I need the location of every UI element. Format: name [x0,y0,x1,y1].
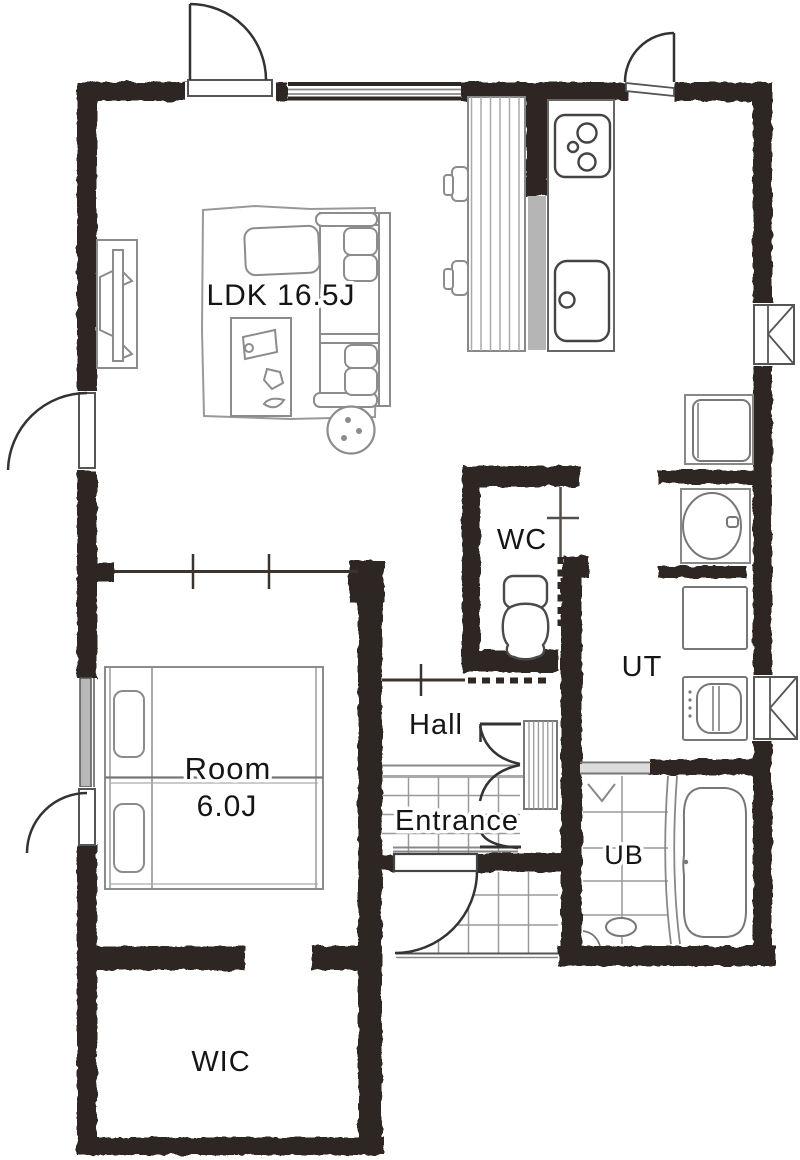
svg-text:6.0J: 6.0J [197,790,258,823]
svg-text:Hall: Hall [409,709,463,741]
svg-text:UB: UB [604,840,644,870]
svg-text:UT: UT [622,651,663,683]
svg-text:WC: WC [497,524,547,556]
svg-text:WIC: WIC [191,1046,250,1078]
svg-text:Entrance: Entrance [395,805,519,837]
svg-text:Room: Room [185,751,272,786]
svg-text:LDK 16.5J: LDK 16.5J [206,279,355,312]
